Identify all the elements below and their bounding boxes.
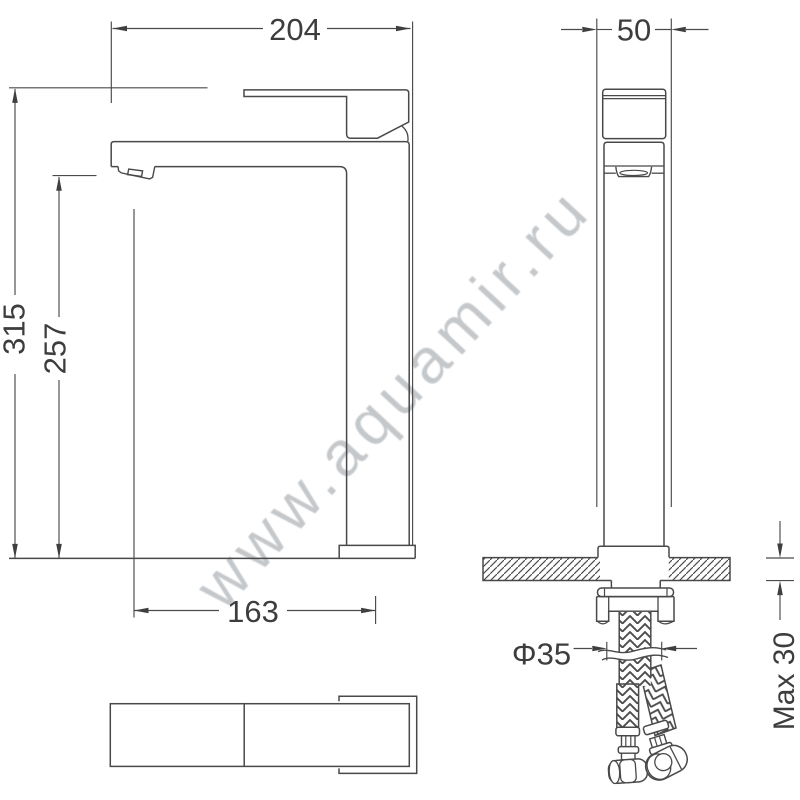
- svg-text:163: 163: [227, 594, 279, 629]
- svg-text:50: 50: [617, 13, 651, 48]
- svg-text:Max 30: Max 30: [768, 632, 800, 730]
- svg-text:204: 204: [269, 12, 321, 47]
- svg-text:257: 257: [38, 323, 73, 375]
- svg-text:315: 315: [0, 303, 32, 355]
- svg-text:Φ35: Φ35: [512, 637, 571, 672]
